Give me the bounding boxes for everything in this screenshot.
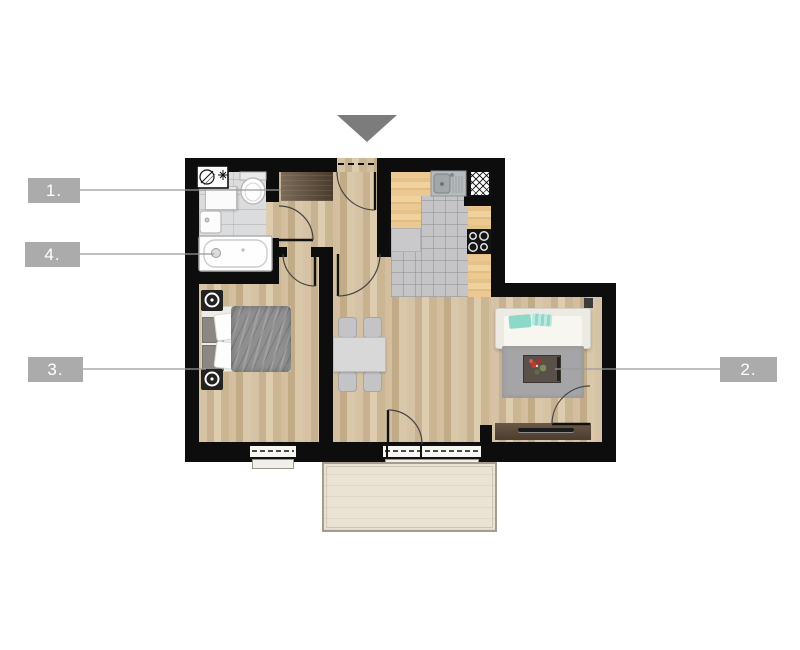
cooktop: [467, 229, 491, 254]
tv: [518, 428, 574, 432]
kitchen-counter-left: [391, 196, 421, 228]
wall-bedroom-dining: [319, 247, 333, 442]
wall-hall-kitchen: [377, 158, 391, 257]
wall-vent-bottom: [464, 196, 505, 206]
wall-bedroom-door-stub: [279, 247, 287, 257]
wall-bedroom-door-post: [311, 247, 319, 257]
balcony: [322, 462, 497, 532]
washing-machine: [205, 186, 237, 210]
callout-3-label: 3.: [47, 360, 63, 380]
wall-outer-left: [185, 158, 199, 462]
wall-bathroom-bottom: [199, 270, 279, 284]
dining-chair-2: [363, 317, 382, 338]
callout-2-living-room[interactable]: 2.: [720, 357, 777, 382]
dining-chair-3: [338, 371, 357, 392]
wall-balcony-jamb: [480, 425, 492, 442]
callout-3-bedroom[interactable]: 3.: [28, 357, 83, 382]
dining-table: [333, 337, 386, 372]
wall-bathroom-right-upper: [266, 172, 279, 202]
floor-plan-canvas: 1. 4. 3. 2.: [0, 0, 800, 650]
wall-kitchen-right: [491, 158, 505, 297]
sofa-pillow-2: [532, 313, 553, 326]
callout-4-bathroom[interactable]: 4.: [25, 242, 80, 267]
entrance-marker-triangle: [337, 115, 397, 142]
balcony-inner-line: [326, 466, 493, 528]
wardrobe: [281, 172, 333, 201]
callout-1-label: 1.: [46, 181, 62, 201]
wall-vent-left: [464, 158, 471, 198]
callout-2-label: 2.: [740, 360, 756, 380]
wall-outer-right: [602, 283, 616, 462]
coffee-table-edge: [557, 357, 560, 381]
nightstand-top: [201, 290, 223, 311]
sofa-pillow-1: [508, 314, 531, 329]
kitchen-floor-tile: [421, 196, 468, 297]
callout-1-hallway[interactable]: 1.: [28, 178, 80, 203]
wall-pier: [584, 298, 593, 308]
callout-4-label: 4.: [44, 245, 60, 265]
kitchen-counter-top: [391, 170, 468, 196]
entrance-opening: [337, 158, 377, 172]
kitchen-cabinet-gray: [391, 228, 421, 252]
nightstand-bottom: [201, 369, 223, 390]
balcony-door-window: [383, 444, 481, 459]
bedroom-window-sill: [252, 459, 294, 469]
dining-chair-1: [338, 317, 357, 338]
wall-living-top: [491, 283, 616, 297]
dining-chair-4: [363, 371, 382, 392]
kitchen-floor-tile-2: [391, 252, 421, 297]
coffee-table: [523, 355, 561, 383]
bed-duvet: [231, 306, 291, 372]
bedroom-window: [250, 444, 296, 459]
